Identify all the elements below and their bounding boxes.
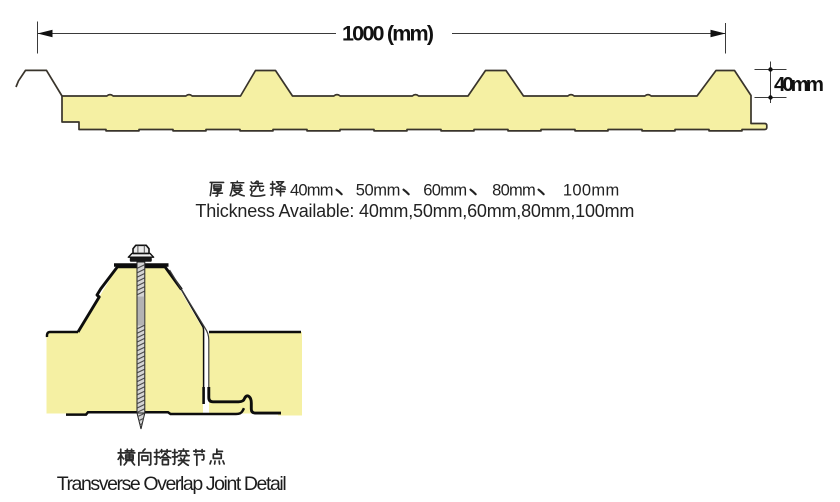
svg-text:100mm: 100mm — [563, 181, 619, 199]
svg-text:40mm: 40mm — [774, 73, 824, 96]
svg-text:80mm: 80mm — [492, 181, 536, 199]
svg-text:1000 (mm): 1000 (mm) — [342, 21, 434, 45]
svg-text:40mm: 40mm — [290, 181, 334, 199]
svg-text:Transverse Overlap Joint Detai: Transverse Overlap Joint Detail — [57, 473, 287, 495]
svg-text:60mm: 60mm — [423, 181, 467, 199]
svg-text:Thickness Available: 40mm,50mm: Thickness Available: 40mm,50mm,60mm,80mm… — [195, 201, 634, 221]
svg-text:50mm: 50mm — [356, 181, 401, 199]
